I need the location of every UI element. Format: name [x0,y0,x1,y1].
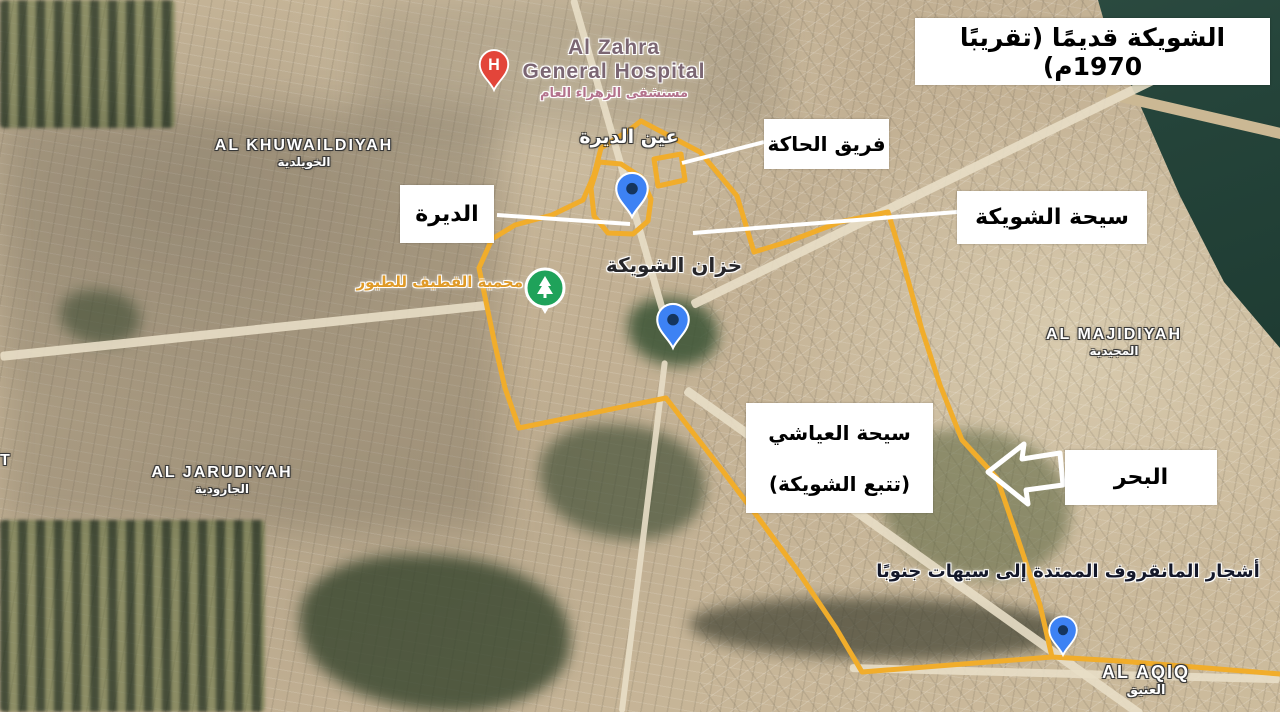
edge-partial-label: T [0,452,12,470]
jarudiyah-label-ar: الجارودية [195,483,249,497]
annotation-box-seeha-shuwaika: سيحة الشويكة [957,191,1147,244]
hospital-label-line1: Al Zahra [568,36,660,60]
bird-reserve-pin[interactable] [526,269,564,314]
ain-deera-label: عين الديرة [579,127,678,149]
map-pin-khazan[interactable] [657,304,689,348]
mangrove-label: أشجار المانقروف الممتدة إلى سيهات جنوبًا [876,562,1260,583]
khuwaildiyah-label-en: AL KHUWAILDIYAH [215,137,393,155]
annotation-box-sea: البحر [1065,450,1217,505]
aqiq-label-en: AL AQIQ [1102,662,1190,683]
hospital-label-line2: General Hospital [523,60,706,84]
ayashi-line2: (تتبع الشويكة) [769,472,910,496]
map-pin-deera[interactable] [616,173,648,217]
haka-square-outline [654,154,685,186]
annotation-box-deera: الديرة [400,185,494,243]
khuwaildiyah-label-ar: الخويلدية [278,156,331,170]
khazan-label: خزان الشويكة [606,254,742,277]
hospital-pin-letter: H [488,56,500,74]
ayashi-line1: سيحة العياشي [768,421,911,445]
aqiq-label-ar: العتيق [1126,684,1165,699]
map-pin-aqiq[interactable] [1049,616,1077,655]
hospital-label-arabic: مستشفى الزهراء العام [540,87,688,102]
bird-reserve-label: محمية القطيف للطيور [356,274,523,291]
jarudiyah-label-en: AL JARUDIYAH [151,464,292,482]
callout-line-haka [682,142,764,163]
annotation-box-title: الشويكة قديمًا (تقريبًا 1970م) [915,18,1270,85]
hospital-pin[interactable]: H [480,50,509,90]
annotation-box-haka: فريق الحاكة [764,119,889,169]
majidiyah-label-en: AL MAJIDIYAH [1046,326,1182,344]
satellite-map[interactable]: H Al Zahra General Hospital مستشف [0,0,1280,712]
sea-direction-left-arrow [988,444,1063,504]
annotation-box-ayashi: سيحة العياشي (تتبع الشويكة) [746,403,933,513]
majidiyah-label-ar: المجيدية [1090,345,1139,359]
